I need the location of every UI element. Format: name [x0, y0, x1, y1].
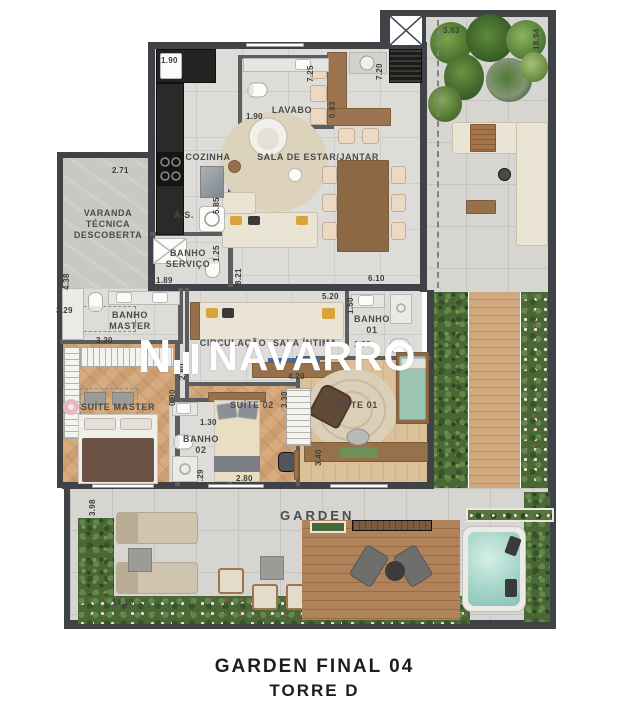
banho-master-toilet: [88, 292, 103, 312]
plant: [428, 86, 462, 122]
jacuzzi: [462, 526, 526, 612]
pillow: [120, 418, 152, 430]
dim-label: 14.19: [112, 598, 134, 607]
banho02-sink: [176, 403, 191, 414]
caption-line2: TORRE D: [0, 681, 629, 701]
lavabo-counter: [243, 58, 329, 72]
dim-label: 1.89: [156, 276, 173, 285]
dim-label: 8.21: [234, 268, 243, 285]
living-sofa-chaise: [222, 192, 256, 214]
sofa-cushion: [296, 216, 308, 225]
banho02-drain: [178, 462, 192, 476]
sofa-cushion: [222, 308, 234, 318]
suite02-throw: [214, 456, 260, 472]
dim-label: 5.85: [212, 197, 221, 214]
dim-label: 1.90: [246, 112, 263, 121]
terrace-side-table: [498, 168, 511, 181]
intima-sofa-arm: [190, 302, 200, 340]
elevator-shaft: [386, 12, 426, 49]
decor-table: [288, 168, 302, 182]
terrace-slat-table: [470, 124, 496, 152]
room-label-cozinha: COZINHA: [178, 152, 238, 163]
dim-label: 2.71: [112, 166, 129, 175]
plant: [520, 52, 548, 82]
dim-label: 4.38: [62, 273, 71, 290]
floor-cushion: [218, 568, 244, 594]
banho01-drain: [395, 302, 407, 314]
room-label-suite02: SUÍTE 02: [222, 400, 282, 411]
caption: GARDEN FINAL 04 TORRE D: [0, 656, 629, 701]
navarro-watermark: N NAVARRO: [138, 338, 416, 374]
stool: [310, 85, 327, 102]
banho-master-sink: [116, 292, 132, 303]
terrace-sofa-right: [516, 122, 548, 246]
dining-chair: [391, 194, 406, 212]
window-lavabo: [246, 43, 304, 47]
dining-chair: [391, 222, 406, 240]
room-label-suite-master: SUÍTE MASTER: [72, 402, 164, 413]
sofa-cushion: [248, 216, 260, 225]
dim-label: 1.90: [161, 56, 178, 65]
grill: [389, 49, 422, 83]
hedge-right-inner: [430, 292, 468, 488]
wall-lavabo-left: [238, 55, 242, 129]
dim-label: 7.25: [306, 65, 315, 82]
dim-label: 3.30: [96, 336, 113, 345]
stool: [362, 128, 379, 144]
room-label-sala-estar: SALA DE ESTAR/JANTAR: [238, 152, 398, 163]
suite02-closet: [286, 388, 311, 446]
logo-n: N: [138, 338, 171, 374]
navarro-logo-icon: N: [138, 338, 198, 374]
dim-label: 18.94: [532, 28, 541, 50]
dim-label: 1.30: [200, 418, 217, 427]
wall-mid: [148, 284, 427, 291]
desk-chair: [346, 428, 370, 446]
deck-slat-bench: [352, 520, 432, 531]
garden-side-table: [128, 548, 152, 572]
dining-table: [337, 160, 389, 252]
caption-line1: GARDEN FINAL 04: [0, 656, 629, 678]
jacuzzi-seat: [505, 579, 517, 597]
stool: [338, 128, 355, 144]
window-suite-master: [92, 484, 154, 488]
hedge-right-outer: [521, 292, 549, 488]
room-label-lavabo: LAVABO: [262, 105, 322, 116]
deck-flower-planter: [466, 508, 554, 522]
projection-line: [437, 20, 439, 288]
banho01-sink: [358, 295, 374, 306]
dim-label: 0.93: [328, 101, 337, 118]
dim-label: 3.98: [88, 499, 97, 516]
pillow: [84, 418, 116, 430]
garden-cube: [260, 556, 284, 580]
logo-bar: [183, 352, 189, 374]
floor-plan: LAVABO COZINHA SALA DE ESTAR/JANTAR VARA…: [0, 0, 629, 713]
dining-chair: [322, 222, 337, 240]
logo-bar: [174, 360, 180, 374]
window-suite01: [330, 484, 388, 488]
sofa-cushion: [230, 216, 242, 225]
dining-chair: [391, 166, 406, 184]
navarro-wordmark: NAVARRO: [208, 338, 416, 374]
banho-master-sink: [152, 292, 168, 303]
room-label-garden: GARDEN: [280, 508, 354, 523]
terrace-bench: [466, 200, 496, 214]
dim-label: 3.40: [314, 449, 323, 466]
dim-label: 2.80: [236, 474, 253, 483]
room-label-as: A.S.: [162, 210, 206, 221]
room-label-suite01: SUÍTE 01: [326, 400, 386, 411]
floor-cushion: [252, 584, 278, 610]
wood-walkway: [469, 292, 520, 488]
desk-mat: [340, 447, 378, 458]
dim-label: 3.29: [56, 306, 73, 315]
dim-label: 5.20: [322, 292, 339, 301]
lavabo-toilet: [248, 83, 268, 98]
room-label-banho-servico: BANHO SERVIÇO: [160, 248, 216, 270]
dim-label: 3.30: [280, 391, 289, 408]
lounger-headrest: [116, 512, 138, 544]
master-blanket: [82, 438, 154, 482]
wall-garden-left: [64, 485, 70, 628]
dim-label: 6.10: [368, 274, 385, 283]
dim-label: 3.63: [443, 26, 460, 35]
logo-bar: [192, 344, 198, 374]
dim-label: 7.20: [375, 63, 384, 80]
dim-label: 1.50: [346, 297, 355, 314]
dining-chair: [322, 194, 337, 212]
room-label-banho-master: BANHO MASTER: [102, 310, 158, 332]
dim-label: 1.25: [212, 245, 221, 262]
window-suite02: [208, 484, 264, 488]
gourmet-sink: [357, 54, 377, 72]
sofa-cushion: [206, 308, 218, 318]
deck-round-table: [384, 560, 406, 582]
suite02-desk: [294, 450, 299, 480]
dining-chair: [322, 166, 337, 184]
wall-suite02-top: [188, 382, 300, 386]
wall-varanda-top: [57, 152, 155, 158]
dim-label: 2.29: [196, 469, 205, 486]
sofa-cushion: [322, 308, 335, 319]
room-label-banho02: BANHO 02: [180, 434, 222, 456]
dim-label: 0.90: [168, 389, 177, 406]
water-heater: [200, 166, 224, 198]
room-label-varanda: VARANDA TÉCNICA DESCOBERTA: [62, 208, 154, 241]
